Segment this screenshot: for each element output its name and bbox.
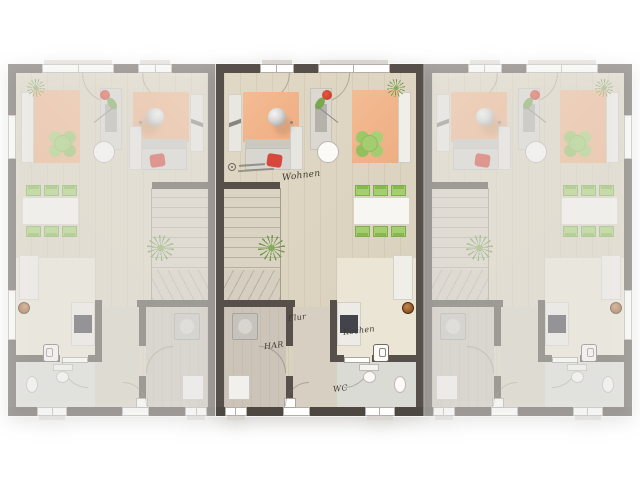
potted-plant bbox=[147, 235, 174, 261]
wall-utility-right-upper bbox=[494, 300, 501, 346]
unit-right: Wohnen Flur HAR Kochen WC bbox=[424, 64, 632, 416]
entrance-door bbox=[122, 407, 149, 416]
wc-sink bbox=[26, 376, 38, 393]
wall-left-party bbox=[216, 64, 224, 416]
flower-decor bbox=[316, 90, 332, 112]
toilet-tank bbox=[359, 364, 379, 371]
wall-stair-stub bbox=[152, 182, 209, 189]
sideboard bbox=[398, 92, 411, 163]
potted-plant bbox=[466, 235, 493, 261]
window-sill bbox=[575, 416, 601, 420]
window-sill bbox=[435, 416, 453, 420]
lounge-rug bbox=[560, 90, 608, 163]
terrace-door-window bbox=[260, 64, 294, 73]
utility-cabinet bbox=[436, 375, 458, 400]
side-window bbox=[8, 290, 16, 340]
sofa-pillow bbox=[149, 153, 166, 168]
sofa-chaise bbox=[290, 126, 303, 170]
utility-cabinet bbox=[182, 375, 204, 400]
wall-utility-top bbox=[223, 300, 295, 307]
stove bbox=[74, 315, 92, 333]
dining-chair bbox=[373, 226, 388, 237]
wall-bottom-1 bbox=[424, 407, 433, 416]
entrance-door bbox=[491, 407, 518, 416]
wall-top-2 bbox=[294, 64, 318, 73]
toilet bbox=[56, 371, 69, 383]
floor-cushion bbox=[569, 135, 586, 152]
lounge-rug bbox=[352, 90, 400, 163]
dining-chair bbox=[563, 226, 578, 237]
toilet-tank bbox=[567, 364, 587, 371]
flower-decor bbox=[524, 90, 540, 112]
washing-machine bbox=[440, 313, 466, 340]
dining-chair bbox=[26, 226, 41, 237]
wall-top-2 bbox=[114, 64, 138, 73]
wc-sink bbox=[394, 376, 406, 393]
wc-window bbox=[573, 407, 603, 416]
wall-bottom-3 bbox=[310, 407, 365, 416]
sideboard bbox=[21, 92, 34, 163]
chimney-symbol bbox=[402, 302, 414, 314]
kitchen-sink bbox=[43, 344, 59, 362]
wall-shelf bbox=[436, 94, 450, 152]
kitchen-counter bbox=[601, 255, 621, 300]
dining-chair bbox=[563, 185, 578, 196]
side-window bbox=[624, 115, 632, 159]
dining-chair bbox=[62, 185, 77, 196]
chimney-symbol bbox=[610, 302, 622, 314]
corner-plant bbox=[27, 79, 45, 97]
dining-chair bbox=[581, 226, 596, 237]
window-sill bbox=[227, 416, 245, 420]
washing-machine bbox=[174, 313, 200, 340]
wall-left-party bbox=[208, 64, 216, 416]
staircase-winder-steps bbox=[152, 270, 208, 300]
utility-window bbox=[225, 407, 247, 416]
dining-chair bbox=[355, 226, 370, 237]
staircase-winder-steps bbox=[432, 270, 488, 300]
side-table bbox=[93, 141, 115, 163]
dining-chair bbox=[391, 226, 406, 237]
wall-wc-top-1 bbox=[538, 355, 552, 362]
wc-sink bbox=[602, 376, 614, 393]
wall-bottom-4 bbox=[603, 407, 632, 416]
wall-utility-top bbox=[137, 300, 209, 307]
floor-cushion bbox=[361, 135, 378, 152]
side-table bbox=[525, 141, 547, 163]
terrace-door-window bbox=[138, 64, 172, 73]
dining-chair bbox=[599, 226, 614, 237]
side-window bbox=[8, 115, 16, 159]
wall-shelf bbox=[228, 94, 242, 152]
wall-stair-stub bbox=[431, 182, 488, 189]
wall-wc-top-1 bbox=[330, 355, 344, 362]
dining-chair bbox=[44, 185, 59, 196]
utility-window bbox=[185, 407, 207, 416]
ceiling-lamp bbox=[146, 108, 164, 126]
toilet bbox=[363, 371, 376, 383]
wall-bottom-4 bbox=[8, 407, 37, 416]
dining-table bbox=[22, 197, 79, 225]
wall-note bbox=[228, 163, 278, 175]
dining-chair bbox=[44, 226, 59, 237]
flower-decor bbox=[100, 90, 116, 112]
dining-table bbox=[561, 197, 618, 225]
dining-table bbox=[353, 197, 410, 225]
lounge-rug bbox=[32, 90, 80, 163]
wc-window bbox=[37, 407, 67, 416]
window-sill bbox=[367, 416, 393, 420]
wall-kitchen-left bbox=[330, 300, 337, 362]
unit-left: Wohnen Flur HAR Kochen WC bbox=[8, 64, 216, 416]
wall-bottom-3 bbox=[67, 407, 122, 416]
sofa-chaise bbox=[129, 126, 142, 170]
wall-bottom-2 bbox=[455, 407, 491, 416]
kitchen-counter bbox=[393, 255, 413, 300]
dining-chair bbox=[391, 185, 406, 196]
window-sill bbox=[187, 416, 205, 420]
wall-bottom-2 bbox=[149, 407, 185, 416]
terrace-window bbox=[42, 64, 114, 73]
kitchen-counter bbox=[19, 255, 39, 300]
entrance-door bbox=[283, 407, 310, 416]
stove bbox=[548, 315, 566, 333]
toilet bbox=[571, 371, 584, 383]
wall-wc-top-1 bbox=[88, 355, 102, 362]
wall-utility-right-upper bbox=[139, 300, 146, 346]
wall-bottom-1 bbox=[207, 407, 216, 416]
washing-machine bbox=[232, 313, 258, 340]
ceiling-lamp bbox=[268, 108, 286, 126]
dining-chair bbox=[355, 185, 370, 196]
staircase-winder-steps bbox=[224, 270, 280, 300]
wall-note-icon bbox=[228, 163, 236, 171]
kitchen-sink bbox=[581, 344, 597, 362]
terrace-window bbox=[526, 64, 598, 73]
dining-chair bbox=[373, 185, 388, 196]
side-window bbox=[624, 290, 632, 340]
toilet-tank bbox=[53, 364, 73, 371]
sofa-chaise bbox=[498, 126, 511, 170]
sideboard bbox=[606, 92, 619, 163]
kitchen-sink bbox=[373, 344, 389, 362]
window-sill bbox=[39, 416, 65, 420]
dining-chair bbox=[26, 185, 41, 196]
wc-window bbox=[365, 407, 395, 416]
utility-cabinet bbox=[228, 375, 250, 400]
side-table bbox=[317, 141, 339, 163]
dining-chair bbox=[581, 185, 596, 196]
wall-kitchen-left bbox=[95, 300, 102, 362]
dining-chair bbox=[599, 185, 614, 196]
ceiling-lamp bbox=[476, 108, 494, 126]
sofa-pillow bbox=[474, 153, 491, 168]
utility-window bbox=[433, 407, 455, 416]
wall-right-party bbox=[416, 64, 424, 416]
floor-cushion bbox=[54, 135, 71, 152]
potted-plant bbox=[258, 235, 285, 261]
terrace-window bbox=[318, 64, 390, 73]
wall-bottom-4 bbox=[395, 407, 424, 416]
chimney-symbol bbox=[18, 302, 30, 314]
wall-kitchen-left bbox=[538, 300, 545, 362]
wall-bottom-3 bbox=[518, 407, 573, 416]
room-label-wc: WC bbox=[333, 383, 349, 394]
corner-plant bbox=[387, 79, 405, 97]
page: { "plan": { "type": "row-house-floor-pla… bbox=[0, 0, 640, 480]
wall-top-2 bbox=[502, 64, 526, 73]
wall-shelf bbox=[190, 94, 204, 152]
terrace-door-window bbox=[468, 64, 502, 73]
wall-left-party bbox=[424, 64, 432, 416]
dining-chair bbox=[62, 226, 77, 237]
wall-bottom-2 bbox=[247, 407, 283, 416]
corner-plant bbox=[595, 79, 613, 97]
wall-stair-stub bbox=[223, 182, 280, 189]
wall-utility-top bbox=[431, 300, 503, 307]
wall-utility-right-upper bbox=[286, 300, 293, 346]
floor-plan: Wohnen Flur HAR Kochen WC bbox=[8, 64, 632, 416]
wall-bottom-1 bbox=[216, 407, 225, 416]
unit-middle: Wohnen Flur HAR Kochen WC bbox=[216, 64, 424, 416]
